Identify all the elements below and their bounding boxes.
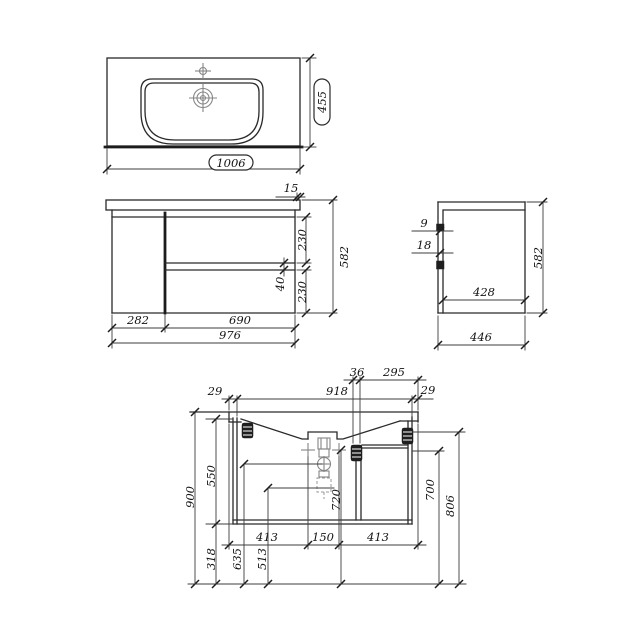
dim-label-total-depth: 446 (469, 330, 492, 344)
wall-bracket-right (402, 428, 413, 444)
dim-basin-depth: 455 (302, 54, 330, 151)
dim-label-front-height: 582 (337, 246, 351, 268)
dim-label-inner-width: 918 (326, 384, 348, 398)
dim-label-side-height: 582 (531, 247, 545, 269)
wall-bracket-left (242, 423, 253, 438)
section-view: 36 295 29 918 29 413 150 413 (183, 365, 466, 588)
dim-front-reveal: 9 (412, 216, 453, 235)
dim-section-widths: 29 918 29 (207, 383, 436, 403)
dim-bracket-position: 36 295 (344, 365, 426, 384)
wall-bracket-center (351, 445, 362, 461)
technical-drawing-canvas: 455 1006 15 (0, 0, 642, 642)
dim-label-mount-hole-height: 720 (329, 489, 343, 511)
dim-label-front-reveal: 9 (420, 216, 427, 230)
dim-label-hole-spacing: 150 (312, 530, 334, 544)
dim-label-hole-offset-right: 413 (366, 530, 389, 544)
dim-basin-width: 1006 (103, 149, 304, 174)
dim-mount-hole-height: 720 (329, 446, 345, 584)
dim-side-height: 582 (527, 198, 547, 317)
dim-label-bracket-width: 36 (350, 365, 365, 379)
dim-label-floor-clearance: 318 (204, 548, 218, 570)
mount-hole-left-icon (301, 443, 315, 457)
dim-total-depth: 446 (434, 316, 529, 350)
dim-label-bracket-height: 806 (443, 495, 457, 517)
dim-label-shelf-height: 700 (423, 479, 437, 501)
dim-upper-drawer: 230 (295, 213, 311, 267)
dim-worktop-height: 900 (183, 408, 199, 584)
dim-label-overhang: 15 (284, 181, 299, 195)
dim-label-body-depth: 428 (472, 285, 495, 299)
dim-label-drawer-width: 690 (229, 313, 251, 327)
dim-front-widths: 282 690 976 (108, 313, 299, 348)
dim-label-panel-thickness: 18 (417, 238, 432, 252)
section-outline (190, 412, 418, 524)
top-view: 455 1006 (103, 54, 330, 174)
dim-label-basin-depth: 455 (315, 91, 329, 114)
front-outline (106, 200, 300, 313)
drain-hole-icon (189, 84, 217, 112)
dim-countertop-overhang: 15 (276, 181, 305, 201)
dim-lower-drawer: 230 (295, 266, 311, 317)
dim-panel-thickness: 18 (412, 238, 453, 257)
vanity-technical-drawing: 455 1006 15 (0, 0, 642, 642)
hinge-block-lower (437, 261, 445, 269)
dim-label-worktop-height: 900 (183, 486, 197, 508)
dim-label-valve-height: 635 (230, 548, 244, 570)
floor-baseline (188, 580, 466, 588)
dim-label-outlet-height: 513 (255, 548, 269, 570)
dim-label-body-span: 550 (204, 465, 218, 487)
side-view: 9 18 428 582 446 (412, 198, 547, 350)
front-view: 15 230 40 230 (106, 181, 351, 348)
dim-label-basin-width: 1006 (216, 156, 245, 170)
dim-hole-spacing: 413 150 413 (222, 530, 426, 549)
dim-label-door-width: 282 (126, 313, 149, 327)
dim-label-bracket-to-edge: 295 (382, 365, 405, 379)
dim-label-overhang-right: 29 (420, 383, 436, 397)
dim-shelf-height: 700 (412, 447, 444, 584)
mount-hole-right-icon (332, 443, 346, 457)
dim-label-upper-drawer: 230 (295, 229, 309, 252)
dim-label-cabinet-width: 976 (219, 328, 241, 342)
dim-label-hole-offset-left: 413 (255, 530, 278, 544)
dim-label-overhang-left: 29 (207, 384, 223, 398)
dim-body-depth: 428 (439, 285, 529, 304)
dim-label-lower-drawer: 230 (295, 281, 309, 304)
dim-label-gap: 40 (273, 277, 287, 293)
faucet-hole-icon (195, 63, 211, 79)
